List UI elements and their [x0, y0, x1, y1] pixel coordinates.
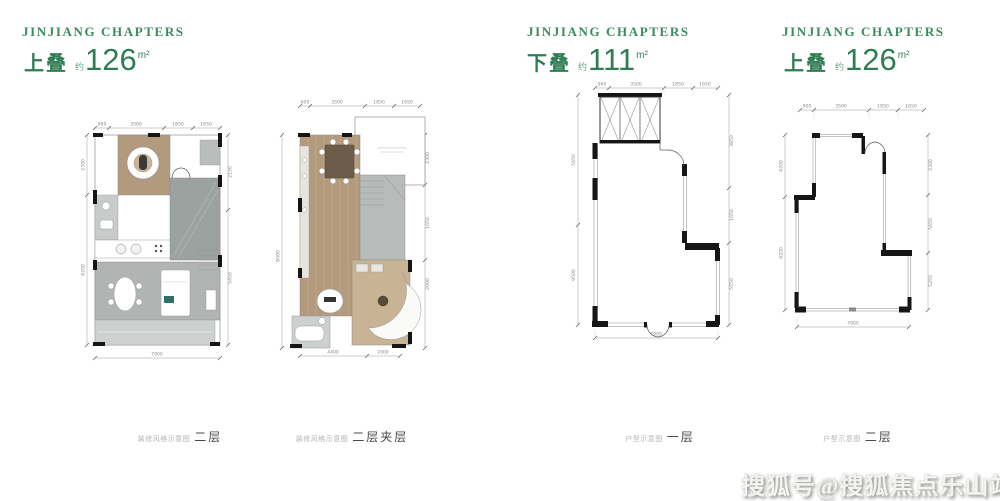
dim-label: 4200: [779, 160, 785, 172]
dim-label: 5650: [928, 218, 934, 230]
dimension-left: 5650 9500: [571, 93, 580, 327]
dim-label: 2300: [928, 159, 934, 171]
caption-prefix: 装修风格示意图: [296, 434, 349, 444]
dimension-top: 900 3500 1850 1650: [593, 82, 720, 96]
caption-floor: 二层夹层: [352, 428, 408, 445]
unit-type: 上叠: [784, 47, 828, 76]
dim-label: 9200: [779, 247, 785, 259]
walls: [794, 133, 912, 313]
dim-label: 7900: [151, 352, 163, 358]
dim-label: 5450: [228, 272, 234, 284]
caption-floor: 一层: [667, 428, 695, 445]
dimension-bottom: 7900: [593, 329, 720, 340]
dimension-bottom: 7900: [93, 352, 222, 361]
dimension-bottom: 7900: [795, 317, 911, 329]
dim-label: 8000: [276, 250, 282, 262]
dim-label: 5250: [928, 275, 934, 287]
unit-type: 下叠: [527, 47, 571, 76]
approx-label: 约: [578, 60, 587, 73]
area-unit: m²: [138, 50, 150, 61]
rooms: [292, 117, 425, 348]
dim-label: 1650: [699, 82, 711, 88]
dim-label: 3500: [331, 100, 343, 106]
dim-label: 600: [301, 100, 310, 106]
unit-label-left: 上叠 约 126 m²: [24, 42, 149, 78]
caption-panel3: 户型示意图 一层: [625, 428, 695, 445]
area-unit: m²: [636, 50, 648, 61]
caption-prefix: 户型示意图: [823, 434, 861, 444]
dimension-top: 900 3500 1850 1650: [798, 104, 926, 120]
dim-label: 3500: [835, 104, 847, 110]
dimension-left: 4200 9200: [779, 133, 788, 312]
dim-label: 5650: [571, 154, 577, 166]
area-value: 126: [85, 42, 137, 78]
dim-label: 9500: [571, 269, 577, 281]
area-unit: m²: [898, 50, 910, 61]
dimension-right: 2300 5650 5250: [926, 133, 934, 312]
caption-panel4: 户型示意图 二层: [823, 428, 893, 445]
dim-label: 8200: [81, 264, 87, 276]
dim-label: 7900: [847, 321, 859, 327]
dimension-top: 600 3500 1850 1650: [298, 100, 422, 109]
floor-plan-lower111-outline: 900 3500 1850 1650 5650 9500 3850 1650 5…: [558, 78, 743, 353]
dim-label: 1650: [425, 217, 431, 229]
brand-title-middle: JINJIANG CHAPTERS: [527, 24, 690, 40]
watermark-text: 搜狐号@搜狐焦点乐山站: [741, 466, 1000, 501]
dim-label: 1850: [877, 104, 889, 110]
dim-label: 4400: [327, 350, 339, 356]
dim-label: 2150: [228, 166, 234, 178]
brand-title-left: JINJIANG CHAPTERS: [22, 24, 185, 40]
area-value: 126: [845, 42, 897, 78]
brand-title-right: JINJIANG CHAPTERS: [782, 24, 945, 40]
dim-label: 1650: [401, 100, 413, 106]
dim-label: 3500: [630, 82, 642, 88]
approx-label: 约: [835, 60, 844, 73]
dim-label: 1850: [373, 100, 385, 106]
dim-label: 1850: [172, 122, 184, 128]
dim-label: 1650: [729, 209, 735, 221]
unit-label-right: 上叠 约 126 m²: [784, 42, 909, 78]
walls: [592, 143, 720, 337]
dim-label: 3500: [130, 122, 142, 128]
unit-label-middle: 下叠 约 111 m²: [527, 42, 648, 78]
floor-plan-upper126-outline: 900 3500 1850 1650 4200 9200 2300 5650 5…: [778, 95, 978, 355]
dimension-right: 3850 1650 5550: [727, 93, 735, 327]
dim-label: 1650: [200, 122, 212, 128]
dim-label: 3850: [729, 135, 735, 147]
approx-label: 约: [75, 60, 84, 73]
dim-label: 1850: [672, 82, 684, 88]
dimension-right: 2150 5450: [226, 133, 234, 347]
dim-label: 900: [803, 104, 812, 110]
caption-floor: 二层: [865, 428, 893, 445]
dim-label: 2000: [377, 350, 389, 356]
floor-plan-mezzanine-rendered: 600 3500 1850 1650 8000 2300 1650 2000 4…: [272, 88, 432, 364]
caption-prefix: 户型示意图: [625, 434, 663, 444]
floor-plan-upper126-level2-rendered: 900 3500 1850 1650 2300 8200 2150 5450 7…: [78, 100, 243, 365]
dim-label: 2300: [81, 159, 87, 171]
unit-type: 上叠: [24, 47, 68, 76]
rooms: [95, 135, 220, 345]
caption-panel1: 装修风格示意图 二层: [138, 428, 223, 445]
dim-label: 2000: [425, 278, 431, 290]
caption-floor: 二层: [194, 428, 222, 445]
dim-label: 1650: [905, 104, 917, 110]
dimension-bottom: 4400 2000: [298, 350, 402, 359]
dim-label: 900: [598, 82, 607, 88]
dim-label: 2300: [425, 152, 431, 164]
stairwell-hatch: [598, 93, 662, 143]
dim-label: 900: [98, 122, 107, 128]
dim-label: 5550: [729, 278, 735, 290]
dimension-left: 2300 8200: [81, 133, 90, 347]
dimension-top: 900 3500 1850 1650: [93, 122, 222, 131]
caption-panel2: 装修风格示意图 二层夹层: [296, 428, 409, 445]
area-value: 111: [588, 42, 635, 78]
dimension-left: 8000: [276, 133, 285, 350]
floorplan-poster: JINJIANG CHAPTERS 上叠 约 126 m² JINJIANG C…: [0, 0, 1000, 500]
caption-prefix: 装修风格示意图: [138, 434, 191, 444]
